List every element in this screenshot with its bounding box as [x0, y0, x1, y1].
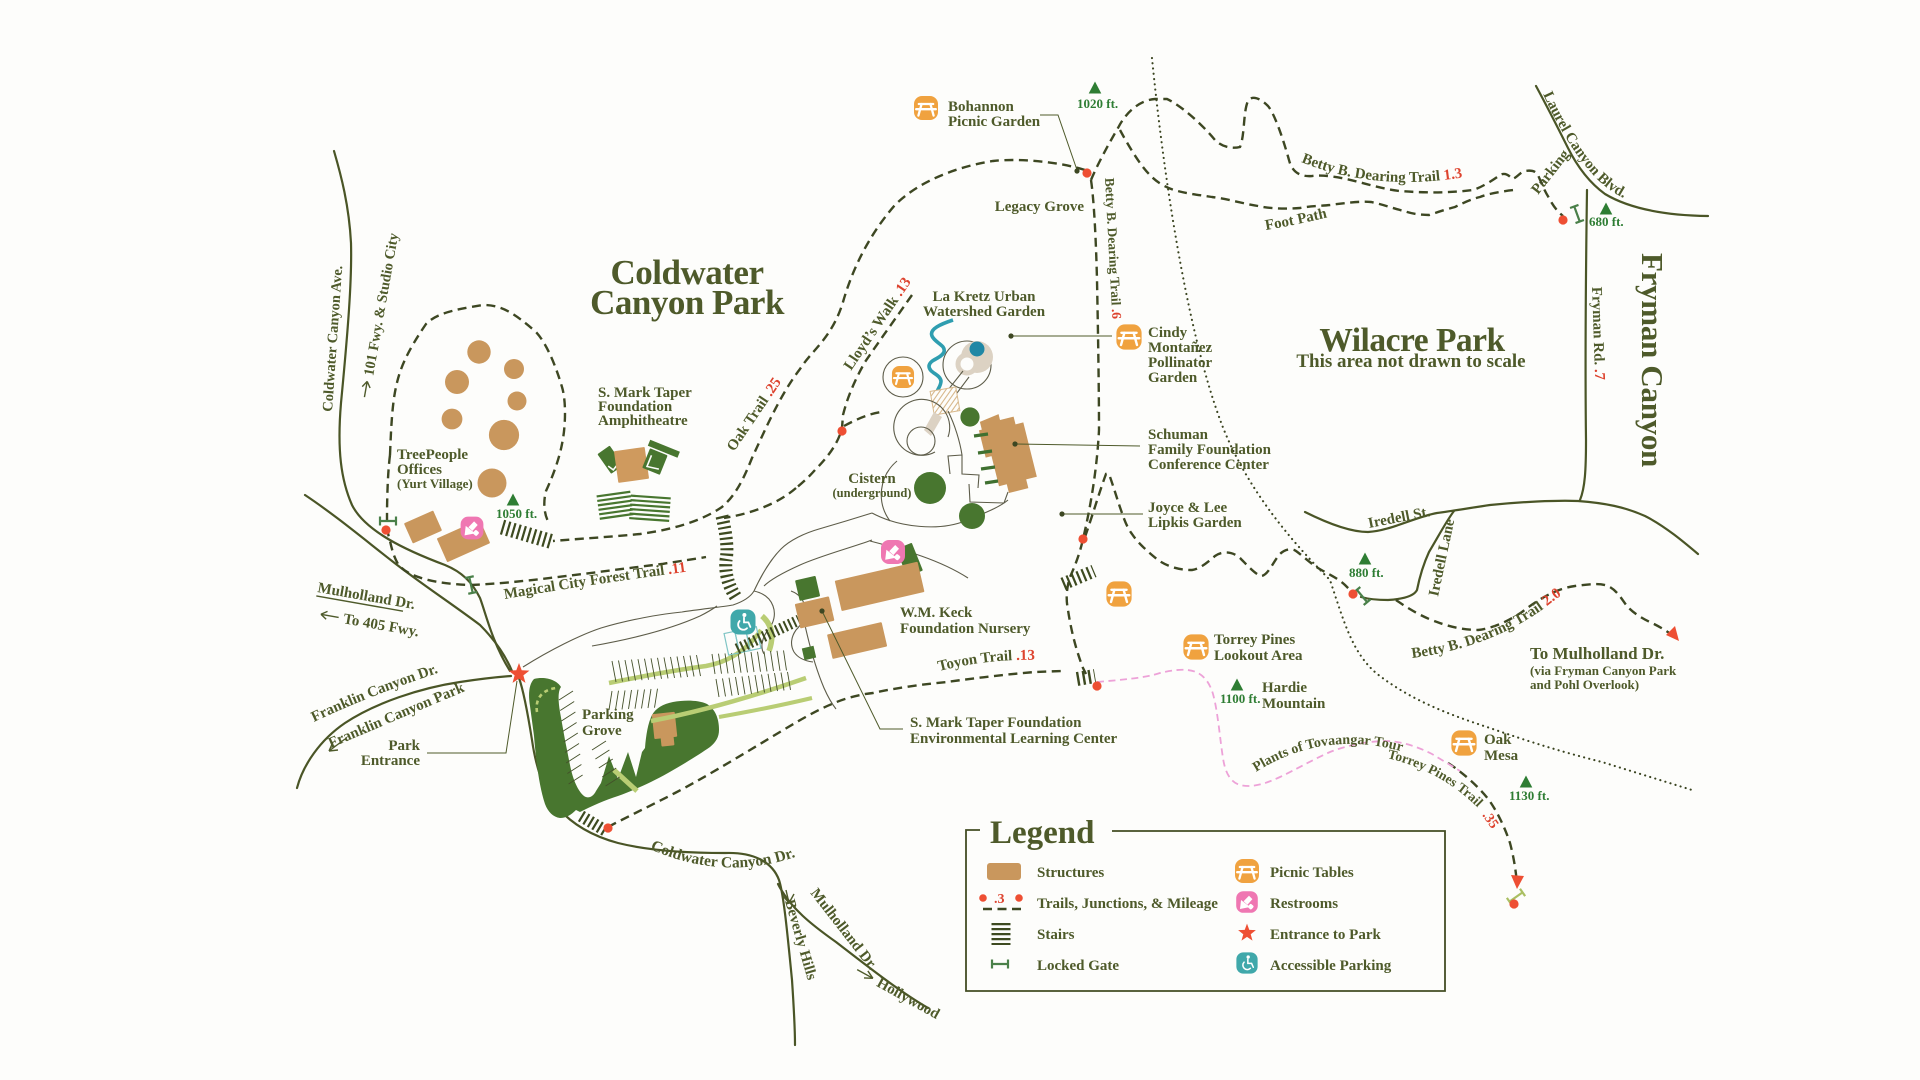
svg-text:880 ft.: 880 ft.: [1349, 565, 1384, 580]
svg-text:Torrey PinesLookout Area: Torrey PinesLookout Area: [1214, 632, 1303, 664]
svg-text:Structures: Structures: [1037, 865, 1104, 881]
svg-text:Canyon Park: Canyon Park: [590, 283, 785, 322]
svg-text:Trails, Junctions, & Mileage: Trails, Junctions, & Mileage: [1037, 896, 1218, 912]
svg-text:Accessible Parking: Accessible Parking: [1270, 958, 1392, 974]
svg-text:1100 ft.: 1100 ft.: [1220, 691, 1260, 706]
svg-text:Stairs: Stairs: [1037, 927, 1075, 943]
svg-text:1050 ft.: 1050 ft.: [496, 506, 537, 521]
svg-text:Restrooms: Restrooms: [1270, 896, 1338, 912]
svg-text:Fryman Canyon: Fryman Canyon: [1635, 253, 1670, 467]
svg-text:Locked Gate: Locked Gate: [1037, 958, 1119, 974]
svg-text:680 ft.: 680 ft.: [1589, 214, 1624, 229]
svg-text:This area not drawn to scale: This area not drawn to scale: [1296, 351, 1525, 372]
svg-text:1130 ft.: 1130 ft.: [1509, 788, 1549, 803]
svg-text:Picnic Tables: Picnic Tables: [1270, 865, 1354, 881]
svg-text:1020 ft.: 1020 ft.: [1077, 96, 1118, 111]
svg-text:.3: .3: [994, 892, 1005, 907]
svg-text:To Mulholland Dr.: To Mulholland Dr.: [1530, 644, 1664, 663]
svg-text:Legend: Legend: [990, 815, 1095, 851]
svg-text:Entrance to Park: Entrance to Park: [1270, 927, 1381, 943]
svg-text:Fryman Rd. .7: Fryman Rd. .7: [1588, 287, 1607, 381]
svg-text:Legacy Grove: Legacy Grove: [995, 199, 1085, 215]
svg-text:La Kretz UrbanWatershed Garden: La Kretz UrbanWatershed Garden: [923, 289, 1046, 320]
